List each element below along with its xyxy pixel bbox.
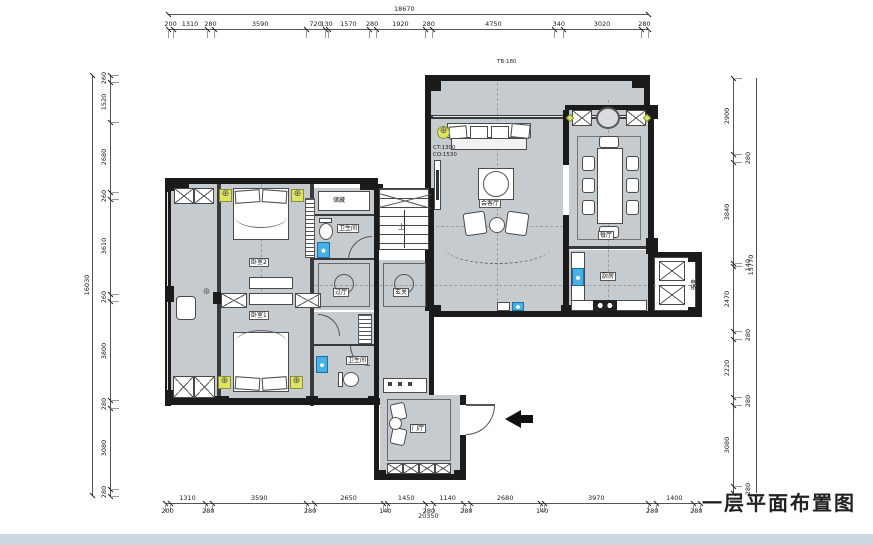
dim-line	[110, 75, 111, 496]
entry-side-table	[389, 417, 402, 430]
dim-extension	[735, 78, 742, 79]
dim-label: 280	[304, 507, 316, 515]
bath-sink	[317, 242, 330, 258]
wardrobe-cabinet	[221, 293, 247, 308]
dim-extension	[112, 496, 119, 497]
dim-label: 1920	[392, 20, 409, 28]
bed2-duvet-arc	[235, 206, 287, 228]
dim-label: 3590	[252, 20, 269, 28]
column	[431, 305, 441, 317]
dim-extension	[112, 192, 119, 193]
dim-label: 3610	[100, 238, 108, 255]
dim-label: 3840	[723, 204, 731, 221]
dim-label: 2470	[723, 291, 731, 308]
dim-label: 1450	[398, 494, 415, 502]
dim-total-right: 15770	[747, 255, 755, 276]
entry-cabinet	[435, 463, 451, 474]
column	[213, 292, 221, 304]
entry-label: 门厅	[410, 424, 426, 433]
dim-extension	[325, 31, 326, 38]
ladder-hatch	[305, 198, 315, 258]
column	[688, 252, 702, 262]
dim-label: 3080	[723, 437, 731, 454]
lamp-glyph: ⊕	[293, 376, 301, 386]
column	[427, 252, 434, 266]
dim-label: 3590	[251, 494, 268, 502]
dim-label: 280	[638, 20, 650, 28]
dim-extension	[735, 339, 742, 340]
wall-dining-kitchen	[569, 246, 648, 249]
dim-label: 280	[744, 329, 752, 341]
dim-label: 3020	[594, 20, 611, 28]
nightstand-lamp-icon: ⊕	[290, 376, 303, 389]
dim-extension	[306, 31, 307, 38]
dining-table	[597, 148, 623, 224]
appliance-icon	[512, 302, 524, 311]
dim-label: 130	[320, 20, 332, 28]
console-item	[398, 382, 402, 386]
dim-label: 1520	[100, 94, 108, 111]
column	[688, 307, 702, 317]
wall-entry-bottom	[374, 474, 466, 480]
dining-room-label: 餐厅	[598, 231, 614, 240]
dim-total-line-left	[92, 75, 93, 496]
wall-bedroom-bottom	[165, 398, 380, 405]
dresser	[249, 293, 293, 305]
dim-label: 1570	[340, 20, 357, 28]
dim-extension	[376, 31, 377, 38]
dim-label: 200	[164, 20, 176, 28]
dim-extension	[173, 31, 174, 38]
dim-label: 280	[744, 152, 752, 164]
lamp-glyph: ⊕	[221, 376, 229, 386]
dim-label: 280	[100, 398, 108, 410]
dim-extension	[112, 82, 119, 83]
pillow	[235, 189, 261, 204]
bath-sink	[316, 356, 328, 373]
dim-extension	[112, 408, 119, 409]
dim-label: 4750	[485, 20, 502, 28]
dim-extension	[735, 331, 742, 332]
dim-label: 280	[646, 507, 658, 515]
dim-extension	[735, 162, 742, 163]
elevator-cabinet	[659, 261, 685, 281]
dim-label: 140	[536, 507, 548, 515]
column	[425, 75, 441, 91]
dim-label: 1140	[439, 494, 456, 502]
column	[454, 470, 466, 480]
entry-door-arc	[466, 405, 495, 435]
dim-extension	[425, 31, 426, 38]
dim-label: 2220	[723, 360, 731, 377]
dim-extension	[207, 31, 208, 38]
column	[165, 286, 174, 302]
dim-total-top: 18670	[394, 5, 415, 13]
dim-label: 3800	[100, 342, 108, 359]
curtain-dashed-arc	[445, 232, 550, 264]
dining-chair	[582, 200, 595, 215]
dim-extension	[648, 31, 649, 38]
stove-icon	[593, 300, 617, 311]
dim-extension	[735, 397, 742, 398]
console-cabinet	[572, 110, 592, 126]
dresser	[249, 277, 293, 289]
dining-chair	[582, 178, 595, 193]
elevator-cabinet	[659, 285, 685, 305]
dining-chair	[599, 136, 619, 148]
dim-extension	[112, 400, 119, 401]
dim-label: 2680	[497, 494, 514, 502]
entry-cabinet	[387, 463, 403, 474]
dim-line	[168, 29, 648, 30]
dim-label: 2680	[100, 149, 108, 166]
wall-living-dining-b	[563, 215, 569, 311]
floor-lamp-icon: ⊕	[437, 126, 450, 139]
wall-living-bottom	[431, 311, 569, 317]
balcony-cabinet	[194, 188, 214, 204]
wall-bedroom-top	[165, 178, 378, 184]
dim-extension	[112, 122, 119, 123]
column	[306, 396, 318, 405]
dim-label: 2650	[340, 494, 357, 502]
dim-extension	[641, 31, 642, 38]
entry-arrow-icon	[505, 410, 521, 428]
dim-extension	[735, 266, 742, 267]
bath-upper-label: 卫生间	[337, 224, 359, 233]
column	[374, 470, 386, 480]
dining-chair	[582, 156, 595, 171]
dim-extension	[735, 405, 742, 406]
dim-label: 280	[744, 395, 752, 407]
dim-total-left: 16030	[83, 275, 91, 296]
dim-label: 280	[202, 507, 214, 515]
dim-extension	[112, 199, 119, 200]
pillow	[262, 376, 288, 391]
bath-lower-label: 卫生间	[346, 356, 368, 365]
dim-extension	[735, 263, 742, 264]
dim-label: 1310	[182, 20, 199, 28]
column	[646, 238, 658, 254]
console-item	[408, 382, 412, 386]
kitchen-label: 厨房	[600, 272, 616, 281]
dining-chair	[626, 178, 639, 193]
toilet	[343, 372, 359, 387]
lamp-glyph: ⊕	[222, 189, 230, 199]
hall-label: 过厅	[333, 288, 349, 297]
dim-label: 280	[366, 20, 378, 28]
bedroom1-label: 卧室1	[249, 311, 269, 320]
dim-extension	[214, 31, 215, 38]
entry-cabinet	[403, 463, 419, 474]
column	[368, 396, 379, 405]
bedroom2-label: 卧室2	[249, 258, 269, 267]
wall-right	[648, 105, 654, 315]
dim-label: 280	[690, 507, 702, 515]
sofa-cushion	[510, 123, 530, 139]
cabinet-small	[497, 302, 510, 311]
pillow	[262, 189, 288, 204]
dim-extension	[112, 75, 119, 76]
dim-label: 280	[100, 486, 108, 498]
lamp-glyph: ⊕	[294, 189, 302, 199]
dim-label: 3080	[100, 440, 108, 457]
note-tb: TB:180	[497, 59, 516, 65]
coffee-table-circle	[483, 171, 509, 197]
dim-label: 280	[204, 20, 216, 28]
dim-label: 280	[460, 507, 472, 515]
wall-kitchen-bottom	[563, 311, 702, 317]
dim-extension	[168, 31, 169, 38]
kitchen-sink	[572, 268, 584, 286]
dining-chair	[626, 200, 639, 215]
dim-label: 200	[161, 507, 173, 515]
dim-label: 1400	[666, 494, 683, 502]
console-item	[388, 382, 392, 386]
note-ct: CT:1300	[433, 145, 455, 151]
dim-extension	[328, 31, 329, 38]
balcony-cabinet	[194, 376, 215, 398]
dim-extension	[369, 31, 370, 38]
small-lamp-icon: ⊕	[202, 288, 211, 297]
storage-label: 储藏	[332, 197, 346, 204]
wall-storage-bottom	[314, 214, 374, 216]
floor-plan-sheet: ⊕ 会客厅 餐厅 厨房 电梯 ⊕ ⊕ ⊕ 卧室2	[0, 0, 873, 545]
entry-arrow-tail	[521, 415, 533, 423]
tv-icon	[436, 170, 439, 200]
balcony-cabinet	[173, 376, 194, 398]
drying-rack-hatch	[358, 314, 372, 344]
dim-extension	[554, 31, 555, 38]
dim-label: 1310	[179, 494, 196, 502]
wall-top	[425, 75, 650, 81]
dim-label: 260	[100, 189, 108, 201]
dim-extension	[432, 31, 433, 38]
entry-cabinet	[419, 463, 435, 474]
dim-extension	[112, 489, 119, 490]
stairs-up-label: 上	[398, 222, 405, 232]
pillow	[235, 376, 261, 391]
dim-label: 260	[100, 72, 108, 84]
window-bottom-strip	[0, 534, 873, 545]
dim-line	[733, 78, 734, 493]
nightstand-lamp-icon: ⊕	[219, 189, 232, 202]
sofa-seat	[451, 138, 527, 150]
bed1-duvet-arc	[235, 330, 287, 356]
drawing-title: 一层平面布置图	[702, 487, 856, 516]
round-stool	[489, 217, 505, 233]
nightstand-lamp-icon: ⊕	[291, 189, 304, 202]
dim-label: 260	[100, 291, 108, 303]
dim-label: 3970	[588, 494, 605, 502]
elevator-label: 电梯	[687, 262, 696, 306]
dim-total-line-top	[168, 14, 648, 15]
dim-extension	[112, 301, 119, 302]
dim-extension	[112, 294, 119, 295]
dim-total-line-right	[756, 78, 757, 493]
column	[215, 396, 229, 405]
lamp-glyph: ⊕	[203, 287, 211, 297]
dim-label: 2900	[723, 108, 731, 125]
balcony-cabinet	[174, 188, 194, 204]
note-co: CO:1530	[433, 152, 457, 158]
toilet	[319, 223, 333, 240]
foyer-label: 玄关	[393, 288, 409, 297]
round-mirror	[596, 107, 620, 129]
lamp-glyph: ⊕	[440, 126, 448, 136]
dim-label: 280	[422, 20, 434, 28]
wall-stair-right	[429, 188, 434, 395]
living-room-label: 会客厅	[479, 199, 501, 208]
dim-label: 140	[379, 507, 391, 515]
balcony-chair	[176, 296, 196, 320]
nightstand-lamp-icon: ⊕	[218, 376, 231, 389]
dim-extension	[563, 31, 564, 38]
dim-extension	[735, 154, 742, 155]
column	[632, 75, 650, 88]
dining-chair	[626, 156, 639, 171]
dim-total-bottom: 20350	[418, 512, 439, 520]
floor-plan: ⊕ 会客厅 餐厅 厨房 电梯 ⊕ ⊕ ⊕ 卧室2	[0, 0, 873, 545]
dim-label: 340	[553, 20, 565, 28]
